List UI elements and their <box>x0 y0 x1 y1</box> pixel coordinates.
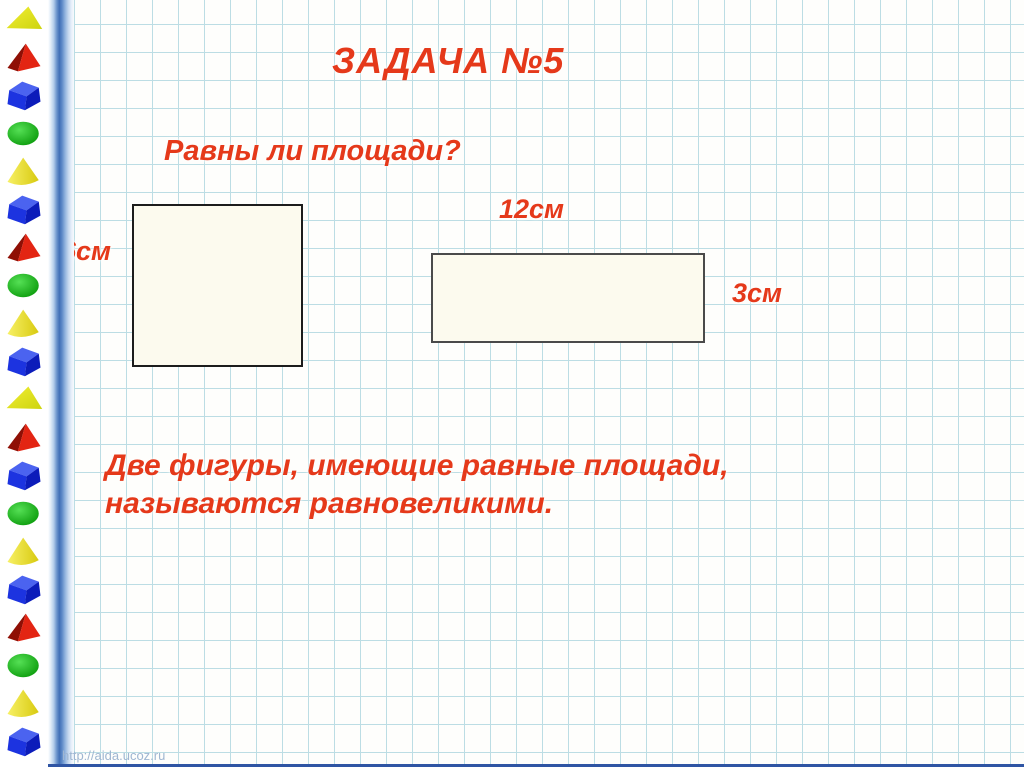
yellow-cone-icon <box>2 687 46 720</box>
yellow-cone-icon <box>2 535 46 568</box>
rectangle-height-label: 3см <box>732 278 782 309</box>
red-pyramid-icon <box>2 611 46 644</box>
blue-cube-icon <box>2 459 46 492</box>
question-text: Равны ли площади? <box>164 135 461 168</box>
red-pyramid-icon <box>2 421 46 454</box>
watermark-url: http://aida.ucoz.ru <box>62 748 165 763</box>
green-ellipse-icon <box>2 649 46 682</box>
slide: ЗАДАЧА №5 Равны ли площади? 6см 12см 3см… <box>0 0 1024 767</box>
definition-text: Две фигуры, имеющие равные площади, назы… <box>105 447 729 523</box>
yellow-cone-icon <box>2 307 46 340</box>
slide-title: ЗАДАЧА №5 <box>332 40 564 82</box>
blue-cube-icon <box>2 725 46 758</box>
green-ellipse-icon <box>2 269 46 302</box>
blue-cube-icon <box>2 573 46 606</box>
red-pyramid-icon <box>2 41 46 74</box>
shapes-sidebar <box>0 0 48 767</box>
definition-line-1: Две фигуры, имеющие равные площади, <box>105 449 729 482</box>
blue-cube-icon <box>2 345 46 378</box>
red-pyramid-icon <box>2 231 46 264</box>
yellow-cone-icon <box>2 155 46 188</box>
yellow-triangle-icon <box>2 3 46 36</box>
blue-cube-icon <box>2 193 46 226</box>
definition-line-2: называются равновеликими. <box>105 487 553 520</box>
shape-column <box>0 0 48 758</box>
yellow-triangle-icon <box>2 383 46 416</box>
green-ellipse-icon <box>2 117 46 150</box>
ribbon-divider <box>48 0 74 767</box>
rectangle-figure <box>431 253 705 343</box>
green-ellipse-icon <box>2 497 46 530</box>
rectangle-width-label: 12см <box>499 194 564 225</box>
square-figure <box>132 204 303 367</box>
blue-cube-icon <box>2 79 46 112</box>
